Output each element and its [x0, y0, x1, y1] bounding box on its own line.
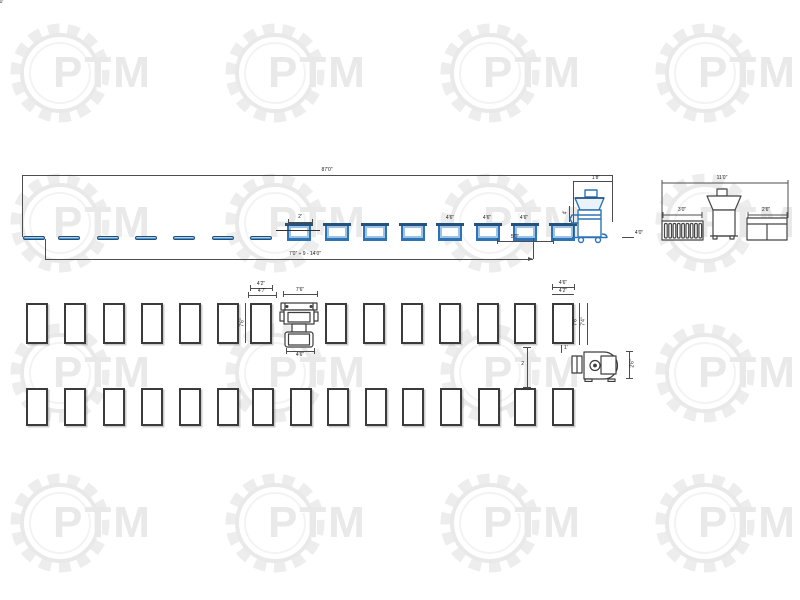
table-plan-view — [179, 303, 201, 344]
table-plan-view — [103, 303, 125, 344]
grinder-depth-label: 2'6" — [631, 354, 636, 374]
dim-tick — [523, 387, 531, 388]
plan-machine-width-label: 7'6" — [296, 288, 304, 293]
table-plan-view — [252, 388, 274, 426]
dim-tick — [286, 348, 287, 354]
table-plan-view — [477, 303, 499, 344]
table-plan-view — [363, 303, 385, 344]
gear-icon — [650, 468, 765, 578]
table-plan-view — [217, 303, 239, 344]
table-plan-view — [141, 303, 163, 344]
dim-tick — [497, 238, 498, 244]
tub-rim — [285, 223, 313, 226]
table-plan-view — [141, 388, 163, 426]
table-plan-view — [440, 388, 462, 426]
tub-side-view — [325, 224, 349, 241]
machine-hopper-end-view — [707, 196, 741, 210]
gear-icon — [220, 468, 335, 578]
tub-rim — [436, 223, 464, 226]
dim-tick — [250, 285, 251, 291]
ref-table-pitch-label: 4'7" — [258, 289, 266, 294]
table-plan-view — [327, 388, 349, 426]
dimension-label: 4'6" — [483, 216, 491, 221]
table-plan-view — [365, 388, 387, 426]
watermark-text: PTM — [268, 198, 367, 248]
tub-side-view — [401, 224, 425, 241]
table-plan-view — [514, 388, 536, 426]
table-plan-view — [26, 388, 48, 426]
tub-side-view — [287, 224, 311, 241]
table-plan-view — [64, 388, 86, 426]
watermark-text: PTM — [53, 48, 152, 98]
watermark-logo: PTM — [5, 168, 165, 283]
table-line — [276, 230, 320, 231]
dim-line — [288, 222, 312, 223]
table-plan-view — [401, 303, 423, 344]
first-tub-width-label: 2' — [298, 215, 302, 220]
dimension-label: 4'6" — [446, 216, 454, 221]
dim-tick — [523, 347, 531, 348]
table-top-side-view — [97, 236, 119, 240]
table-plan-view — [217, 388, 239, 426]
tub-rim — [323, 223, 351, 226]
watermark-text: PTM — [268, 348, 367, 398]
dim-line — [22, 175, 23, 237]
dim-tick — [288, 219, 289, 225]
end-view-right-label: 2'6" — [762, 208, 770, 213]
end-view-left-label: 3'0" — [678, 208, 686, 213]
segment-dim-label: 4'0" — [0, 0, 4, 5]
machine-hopper — [575, 198, 604, 210]
ref-table-depth-label: 7'6" — [241, 313, 246, 333]
table-top-side-view — [173, 236, 195, 240]
dimension-label: 4'6" — [520, 216, 528, 221]
dim-line — [573, 181, 612, 182]
watermark-logo: PTM — [220, 468, 380, 583]
table-plan-view — [290, 388, 312, 426]
last-table-pitch-label: 4'2" — [559, 289, 567, 294]
dim-line — [552, 294, 574, 295]
watermark-text: PTM — [698, 348, 797, 398]
watermark-text: PTM — [268, 48, 367, 98]
gear-icon — [5, 468, 120, 578]
gear-icon — [650, 18, 765, 128]
end-elevation-view — [655, 172, 795, 244]
dim-tick — [312, 219, 313, 225]
table-plan-view — [552, 388, 574, 426]
dim-tick — [626, 378, 633, 379]
watermark-logo: PTM — [5, 18, 165, 133]
watermark-text: PTM — [53, 198, 152, 248]
table-top-side-view — [135, 236, 157, 240]
dim-line — [533, 241, 534, 259]
dim-line — [45, 259, 533, 260]
gear-icon — [220, 18, 335, 128]
dim-tick — [553, 238, 554, 244]
tub-rim — [511, 223, 539, 226]
watermark-logo: PTM — [650, 18, 800, 133]
dim-line — [45, 239, 46, 260]
dim-tick — [314, 348, 315, 354]
hopper-machine-side-view — [558, 185, 644, 245]
watermark-text: PTM — [53, 498, 152, 548]
segment-dim-label: 5'0" — [511, 235, 519, 240]
table-plan-view — [439, 303, 461, 344]
tub-rim — [474, 223, 502, 226]
machine-body — [578, 210, 601, 237]
table-top-side-view — [58, 236, 80, 240]
table-plan-view — [64, 303, 86, 344]
watermark-logo: PTM — [435, 468, 595, 583]
last-table-width-label: 4'6" — [559, 281, 567, 286]
table-plan-view — [514, 303, 536, 344]
tub-side-view — [438, 224, 462, 241]
ref-table-width-label: 4'2" — [257, 282, 265, 287]
watermark-logo: PTM — [435, 18, 595, 133]
gear-icon — [220, 168, 335, 278]
watermark-text: PTM — [698, 498, 797, 548]
dim-tick — [626, 351, 633, 352]
table-top-side-view — [23, 236, 45, 240]
dim-line — [497, 241, 553, 242]
gear-icon — [5, 18, 120, 128]
machine-wheel — [596, 238, 601, 243]
table-plan-view — [250, 303, 272, 344]
gear-icon — [650, 318, 765, 428]
dim-line — [248, 295, 276, 296]
machine-wheel — [579, 238, 584, 243]
grinder-plan-view — [568, 348, 632, 382]
end-view-total-label: 11'0" — [717, 176, 728, 181]
overall-length-label: 87'0" — [321, 168, 332, 173]
table-top-side-view — [212, 236, 234, 240]
dim-tick — [248, 292, 249, 298]
machine-spout — [570, 215, 578, 223]
watermark-text: PTM — [268, 498, 367, 548]
hopper-machine-plan-view — [276, 296, 324, 354]
dim-tick — [552, 284, 553, 290]
dim-line — [283, 294, 317, 295]
dim-line — [22, 175, 612, 176]
table-plan-view — [478, 388, 500, 426]
machine-cap-end-view — [717, 189, 727, 196]
last-table-depth-label-2: 7'4" — [582, 312, 587, 332]
dim-line — [527, 347, 528, 388]
gear-icon — [435, 468, 550, 578]
watermark-logo: PTM — [650, 468, 800, 583]
watermark-logo: PTM — [220, 18, 380, 133]
plan-machine-base-label: 4'6" — [296, 353, 304, 358]
dim-tick — [574, 284, 575, 290]
table-plan-view — [103, 388, 125, 426]
last-table-depth-label: 7'6" — [574, 312, 579, 332]
watermark-text: PTM — [698, 48, 797, 98]
machine-body-end-view — [713, 210, 735, 236]
table-plan-view — [552, 303, 574, 344]
table-plan-view — [402, 388, 424, 426]
dim-line — [587, 303, 588, 345]
watermark-text: PTM — [483, 498, 582, 548]
gear-icon — [435, 18, 550, 128]
watermark-text: PTM — [483, 48, 582, 98]
table-run-label: 7'0" ÷ 9 - 14'0" — [289, 252, 321, 257]
watermark-logo: PTM — [5, 468, 165, 583]
tub-rim — [399, 223, 427, 226]
dim-tick — [272, 285, 273, 291]
tub-side-view — [363, 224, 387, 241]
table-plan-view — [325, 303, 347, 344]
table-plan-view — [179, 388, 201, 426]
engineering-drawing: PTM PTM PTM PTM PTM — [0, 0, 800, 600]
table-top-side-view — [250, 236, 272, 240]
table-plan-view — [26, 303, 48, 344]
dim-line — [561, 345, 562, 353]
machine-cap — [585, 190, 597, 197]
row-gap-label: 2 — [521, 362, 524, 367]
machine-width-label: 1'8" — [592, 176, 600, 181]
watermark-logo: PTM — [650, 318, 800, 433]
tub-rim — [361, 223, 389, 226]
